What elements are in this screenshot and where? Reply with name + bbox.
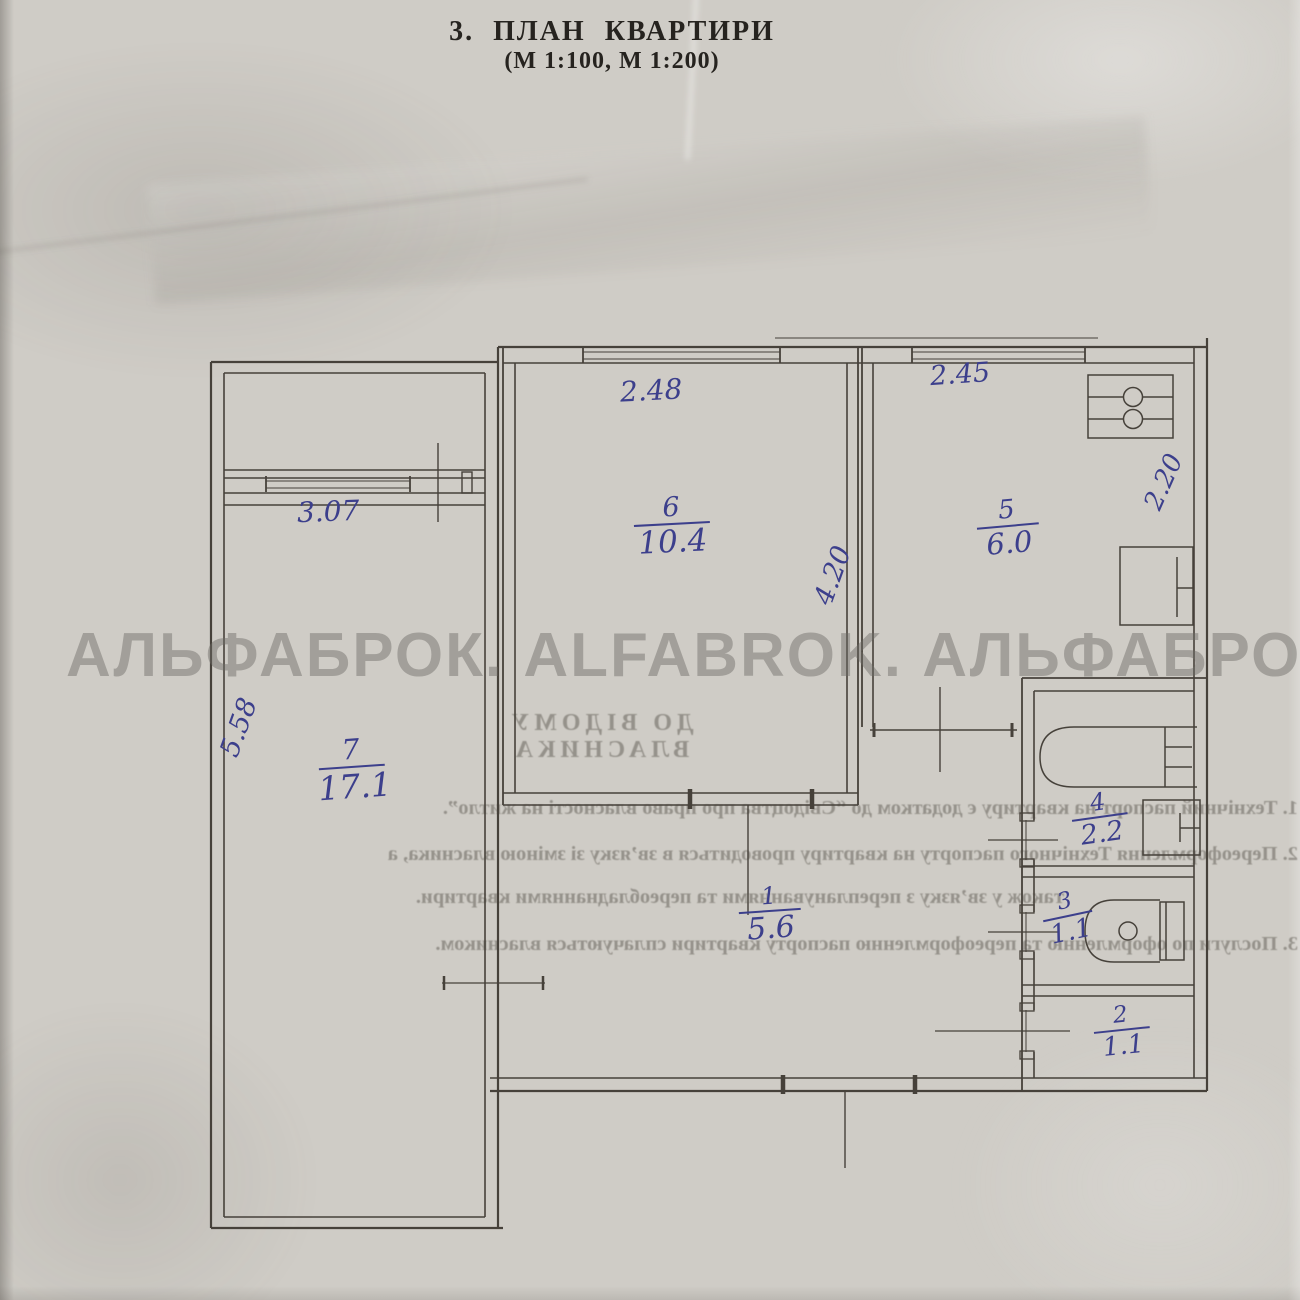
bathtub-icon: [1040, 727, 1197, 787]
outer-wall-bottom: [490, 1075, 1207, 1168]
dimension-2-48: 2.48: [619, 372, 683, 408]
toilet-icon: [1085, 900, 1184, 962]
room-area: 17.1: [317, 768, 389, 806]
room-label-7: 7 17.1: [315, 734, 390, 806]
window: [583, 348, 1085, 363]
room-label-5: 5 6.0: [972, 494, 1043, 561]
room-area: 6.0: [975, 526, 1043, 561]
room-number: 6: [630, 492, 711, 523]
outer-wall-right: [1194, 338, 1207, 1091]
room-area: 5.6: [737, 912, 805, 947]
washbasin-icon: [1143, 800, 1200, 855]
room7-door-axis: [442, 976, 545, 990]
balcony-walls: [211, 362, 498, 493]
room-number: 5: [972, 494, 1040, 526]
kitchen-door-axis: [870, 687, 1017, 772]
room-area: 10.4: [632, 525, 714, 560]
watermark: АЛЬФАБРОК. ALFABROK. АЛЬФАБРОК: [66, 620, 1300, 691]
dimension-2-45: 2.45: [929, 357, 991, 392]
room-number: 7: [315, 734, 387, 767]
room-number: 1: [735, 882, 803, 911]
dimension-3-07: 3.07: [296, 494, 359, 529]
room-area: 2.2: [1071, 816, 1134, 851]
kitchen-sink-icon: [1120, 547, 1193, 625]
room-label-3: 3 1.1: [1036, 885, 1100, 950]
room-label-1: 1 5.6: [735, 882, 805, 946]
room-area: 1.1: [1092, 1030, 1154, 1062]
room-label-6: 6 10.4: [630, 492, 713, 560]
room-label-2: 2 1.1: [1089, 1001, 1154, 1062]
room-label-4: 4 2.2: [1066, 786, 1133, 851]
scanned-floor-plan-page: 3. ПЛАН КВАРТИРИ (М 1:100, М 1:200) ДО В…: [0, 0, 1300, 1300]
stove-icon: [1088, 375, 1173, 438]
